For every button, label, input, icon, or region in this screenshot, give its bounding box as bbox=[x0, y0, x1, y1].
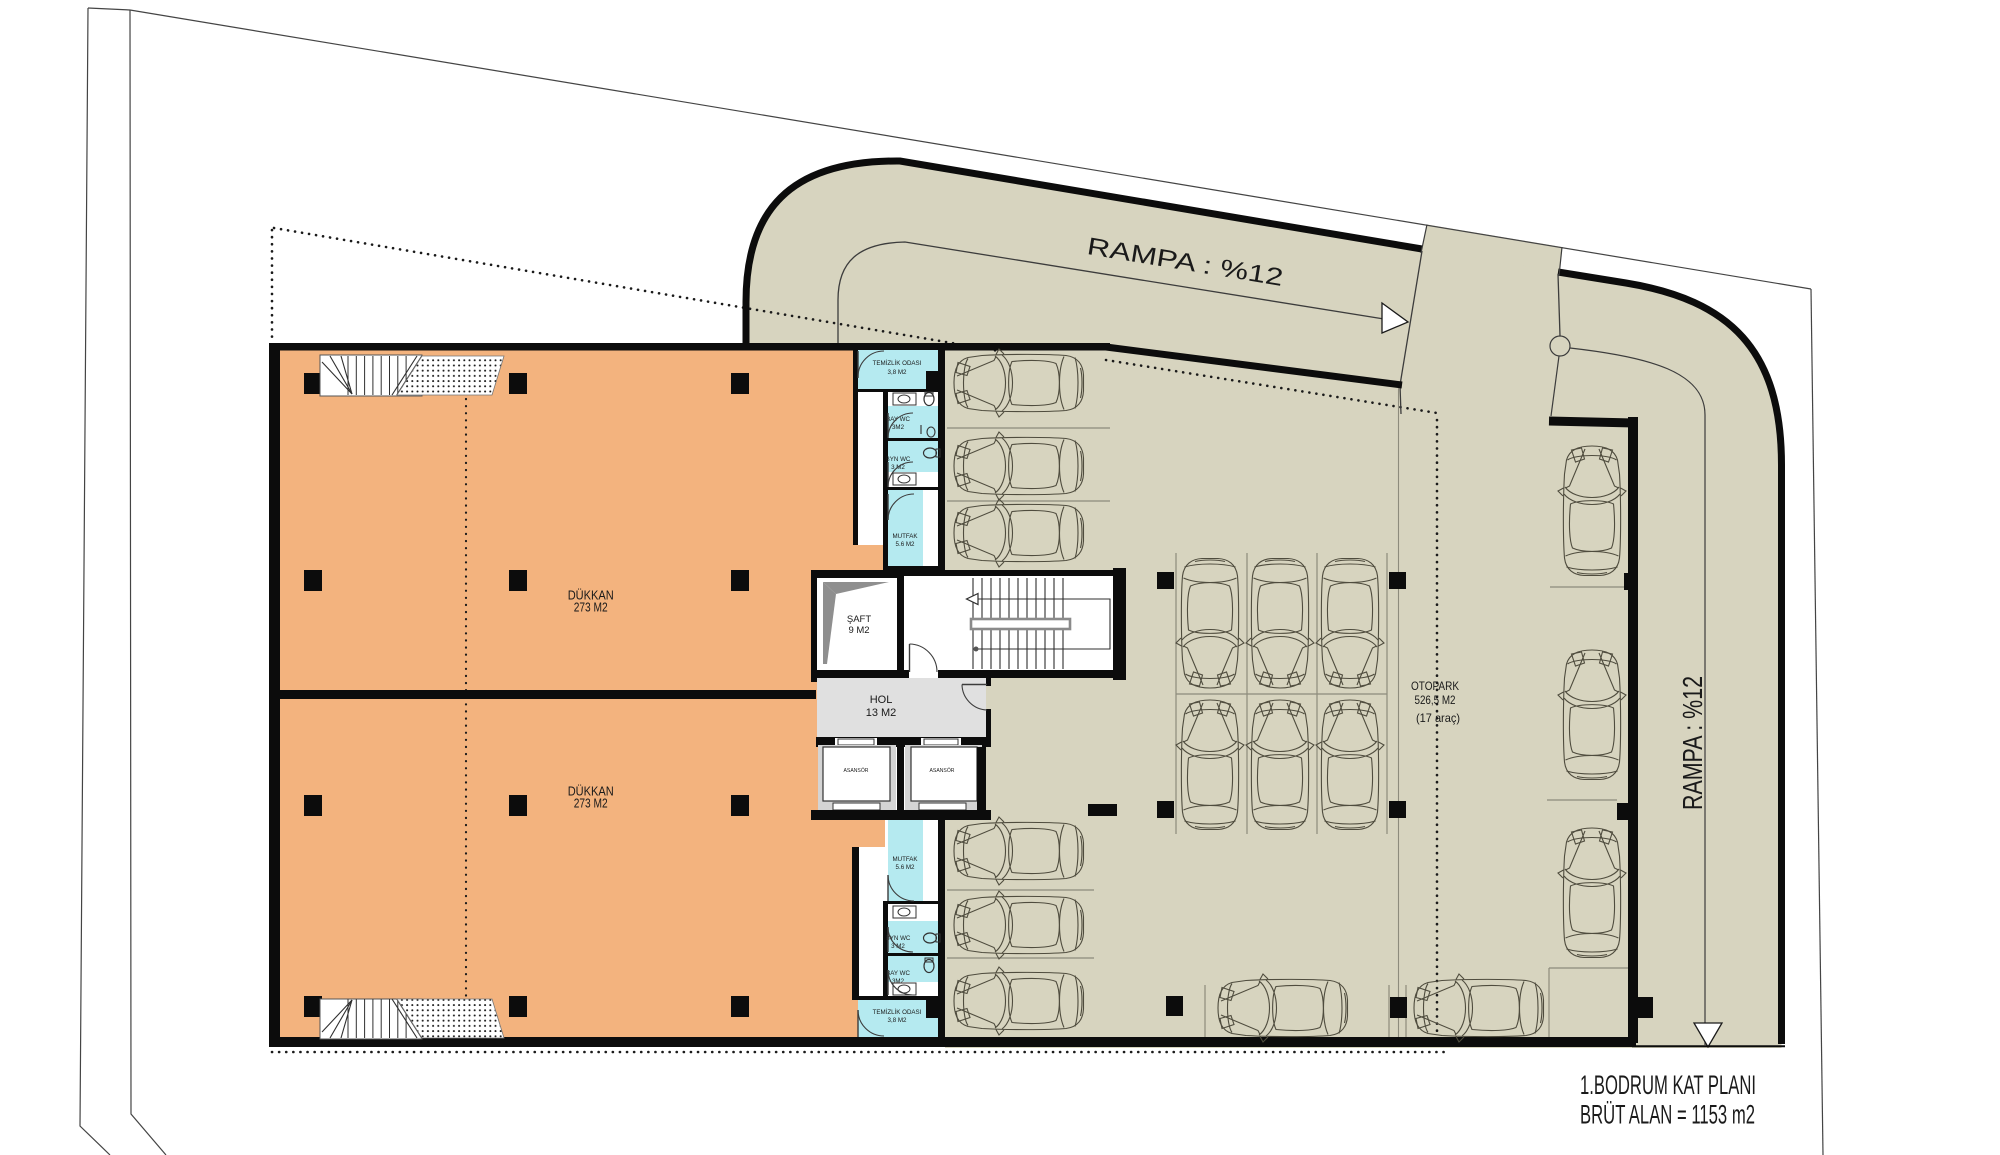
svg-text:BRÜT ALAN = 1153 m2: BRÜT ALAN = 1153 m2 bbox=[1580, 1100, 1755, 1130]
svg-text:273 M2: 273 M2 bbox=[574, 600, 608, 615]
svg-text:OTOPARK: OTOPARK bbox=[1411, 679, 1459, 693]
svg-text:13 M2: 13 M2 bbox=[866, 707, 897, 719]
svg-text:273 M2: 273 M2 bbox=[574, 796, 608, 811]
svg-text:(17 araç): (17 araç) bbox=[1416, 711, 1460, 725]
svg-text:TEMİZLİK ODASI: TEMİZLİK ODASI bbox=[873, 1009, 922, 1016]
svg-text:BAY WC: BAY WC bbox=[886, 970, 910, 977]
svg-text:BYN WC: BYN WC bbox=[886, 456, 911, 463]
svg-text:3 M2: 3 M2 bbox=[891, 943, 905, 950]
svg-text:526,5 M2: 526,5 M2 bbox=[1415, 693, 1456, 707]
svg-text:3,8 M2: 3,8 M2 bbox=[888, 1017, 907, 1024]
svg-text:TEMİZLİK ODASI: TEMİZLİK ODASI bbox=[873, 360, 922, 367]
svg-text:BAY WC: BAY WC bbox=[886, 416, 910, 423]
svg-text:ASANSÖR: ASANSÖR bbox=[844, 767, 869, 774]
svg-text:HOL: HOL bbox=[870, 694, 893, 706]
svg-text:ŞAFT: ŞAFT bbox=[847, 614, 871, 625]
svg-text:9 M2: 9 M2 bbox=[848, 625, 869, 636]
svg-text:3M2: 3M2 bbox=[892, 424, 905, 431]
svg-text:5.6 M2: 5.6 M2 bbox=[896, 541, 915, 548]
svg-text:3 M2: 3 M2 bbox=[891, 464, 905, 471]
svg-text:ASANSÖR: ASANSÖR bbox=[930, 767, 955, 774]
svg-text:5.6 M2: 5.6 M2 bbox=[896, 864, 915, 871]
svg-text:3,8 M2: 3,8 M2 bbox=[888, 369, 907, 376]
svg-text:1.BODRUM KAT PLANI: 1.BODRUM KAT PLANI bbox=[1580, 1070, 1756, 1100]
svg-text:MUTFAK: MUTFAK bbox=[892, 856, 918, 863]
svg-text:RAMPA : %12: RAMPA : %12 bbox=[1677, 676, 1708, 810]
svg-text:MUTFAK: MUTFAK bbox=[892, 533, 918, 540]
